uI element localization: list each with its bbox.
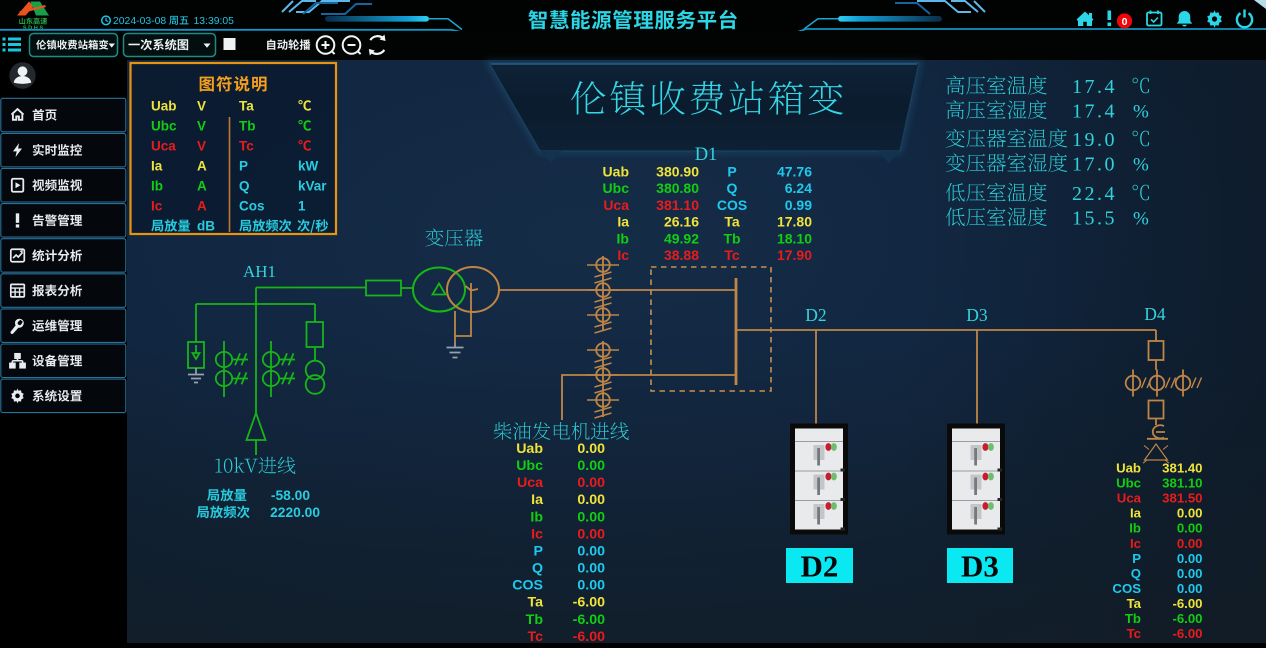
svg-text:0.00: 0.00 <box>1177 536 1203 551</box>
svg-text:Tc: Tc <box>1127 626 1141 641</box>
svg-text:0.00: 0.00 <box>577 578 605 594</box>
svg-text:2220.00: 2220.00 <box>270 505 320 520</box>
svg-text:Ta: Ta <box>239 99 254 114</box>
svg-text:381.10: 381.10 <box>656 197 699 213</box>
svg-text:17.4: 17.4 <box>1072 101 1117 123</box>
svg-text:Ib: Ib <box>530 509 543 525</box>
svg-text:1: 1 <box>298 199 306 214</box>
svg-text:D4: D4 <box>1144 304 1166 324</box>
svg-text:22.4: 22.4 <box>1072 183 1117 205</box>
svg-text:Ia: Ia <box>617 214 629 230</box>
svg-text:A: A <box>197 159 207 174</box>
svg-text:-6.00: -6.00 <box>573 595 605 611</box>
svg-text:Ic: Ic <box>151 199 163 214</box>
svg-text:A: A <box>197 179 207 194</box>
svg-text:0.00: 0.00 <box>577 492 605 508</box>
svg-text:V: V <box>197 139 206 154</box>
svg-text:%: % <box>1133 155 1149 176</box>
svg-text:Ia: Ia <box>151 159 163 174</box>
svg-text:Uca: Uca <box>151 139 176 154</box>
svg-text:0.00: 0.00 <box>1177 551 1203 566</box>
svg-text:19.0: 19.0 <box>1072 129 1117 151</box>
svg-text:0.00: 0.00 <box>1177 566 1203 581</box>
svg-text:A: A <box>197 199 207 214</box>
svg-text:0.99: 0.99 <box>785 197 812 213</box>
svg-text:dB: dB <box>197 219 215 234</box>
svg-text:Tb: Tb <box>723 230 740 246</box>
svg-text:-6.00: -6.00 <box>1172 611 1202 626</box>
svg-text:0.00: 0.00 <box>577 441 605 457</box>
svg-text:P: P <box>727 163 736 179</box>
svg-text:-58.00: -58.00 <box>271 488 310 503</box>
svg-text:49.92: 49.92 <box>664 230 699 246</box>
svg-text:Ta: Ta <box>527 595 543 611</box>
svg-text:Cos: Cos <box>239 199 265 214</box>
svg-text:26.16: 26.16 <box>664 214 699 230</box>
svg-text:Ia: Ia <box>1130 506 1142 521</box>
svg-text:COS: COS <box>717 197 747 213</box>
svg-text:17.4: 17.4 <box>1072 76 1117 98</box>
svg-text:AH1: AH1 <box>243 262 276 281</box>
svg-text:Uab: Uab <box>603 163 629 179</box>
svg-text:Uab: Uab <box>516 441 543 457</box>
svg-text:380.90: 380.90 <box>656 163 699 179</box>
svg-text:0.00: 0.00 <box>577 475 605 491</box>
svg-text:Q: Q <box>1131 566 1141 581</box>
svg-text:-6.00: -6.00 <box>1172 626 1202 641</box>
svg-text:Uca: Uca <box>1117 491 1142 506</box>
svg-text:Uca: Uca <box>603 197 629 213</box>
svg-text:D3: D3 <box>966 305 988 325</box>
svg-text:-6.00: -6.00 <box>573 612 605 628</box>
svg-text:kVar: kVar <box>298 179 327 194</box>
svg-text:Tc: Tc <box>239 139 254 154</box>
svg-text:Ubc: Ubc <box>1116 476 1141 491</box>
svg-text:381.40: 381.40 <box>1162 461 1202 476</box>
svg-text:17.90: 17.90 <box>777 247 812 263</box>
svg-text:D3: D3 <box>961 549 999 584</box>
svg-text:0.00: 0.00 <box>1177 521 1203 536</box>
svg-text:Ubc: Ubc <box>603 180 630 196</box>
svg-text:P: P <box>1132 551 1141 566</box>
svg-text:Tc: Tc <box>724 247 740 263</box>
svg-text:0.00: 0.00 <box>577 509 605 525</box>
svg-text:Tb: Tb <box>526 612 544 628</box>
svg-text:2024-03-08: 2024-03-08 <box>113 16 166 27</box>
svg-text:Ib: Ib <box>617 230 629 246</box>
svg-text:D2: D2 <box>805 305 826 325</box>
svg-text:17.80: 17.80 <box>777 214 812 230</box>
svg-text:13:39:05: 13:39:05 <box>194 16 235 27</box>
svg-text:D2: D2 <box>801 549 839 584</box>
svg-text:0.00: 0.00 <box>1177 581 1203 596</box>
svg-text:380.80: 380.80 <box>656 180 699 196</box>
svg-text:0.00: 0.00 <box>577 526 605 542</box>
svg-text:kW: kW <box>298 159 319 174</box>
svg-text:%: % <box>1133 102 1149 123</box>
svg-text:P: P <box>534 544 543 560</box>
svg-text:0.00: 0.00 <box>577 561 605 577</box>
svg-text:Ia: Ia <box>531 492 543 508</box>
svg-text:47.76: 47.76 <box>777 163 812 179</box>
svg-text:-6.00: -6.00 <box>1172 596 1202 611</box>
svg-text:-6.00: -6.00 <box>573 629 605 645</box>
svg-text:Ubc: Ubc <box>151 119 177 134</box>
svg-text:Ib: Ib <box>1129 521 1141 536</box>
svg-text:COS: COS <box>512 578 543 594</box>
svg-text:Ubc: Ubc <box>516 458 543 474</box>
svg-text:V: V <box>197 99 206 114</box>
svg-text:6.24: 6.24 <box>785 180 812 196</box>
svg-text:0: 0 <box>1122 16 1128 28</box>
svg-text:V: V <box>197 119 206 134</box>
svg-text:Ic: Ic <box>531 526 543 542</box>
svg-text:Uca: Uca <box>517 475 543 491</box>
svg-text:Tb: Tb <box>239 119 256 134</box>
svg-text:Q: Q <box>727 180 738 196</box>
svg-text:D1: D1 <box>695 145 718 165</box>
svg-text:381.10: 381.10 <box>1162 476 1202 491</box>
svg-text:%: % <box>1133 209 1149 230</box>
svg-text:Ib: Ib <box>151 179 163 194</box>
svg-text:17.0: 17.0 <box>1072 154 1117 176</box>
svg-text:Q: Q <box>532 561 543 577</box>
svg-text:0.00: 0.00 <box>577 544 605 560</box>
svg-text:38.88: 38.88 <box>664 247 699 263</box>
svg-text:COS: COS <box>1112 581 1141 596</box>
svg-text:0.00: 0.00 <box>577 458 605 474</box>
svg-text:Q: Q <box>239 179 250 194</box>
svg-text:Ic: Ic <box>617 247 629 263</box>
svg-text:381.50: 381.50 <box>1162 491 1202 506</box>
svg-text:0.00: 0.00 <box>1177 506 1203 521</box>
svg-text:P: P <box>239 159 248 174</box>
svg-text:Tb: Tb <box>1125 611 1141 626</box>
svg-text:Ic: Ic <box>1130 536 1141 551</box>
svg-text:18.10: 18.10 <box>777 230 812 246</box>
svg-text:Tc: Tc <box>527 629 543 645</box>
svg-text:Ta: Ta <box>1127 596 1142 611</box>
svg-text:Uab: Uab <box>151 99 177 114</box>
svg-text:15.5: 15.5 <box>1072 208 1117 230</box>
svg-text:Uab: Uab <box>1116 461 1141 476</box>
svg-text:Ta: Ta <box>724 214 740 230</box>
